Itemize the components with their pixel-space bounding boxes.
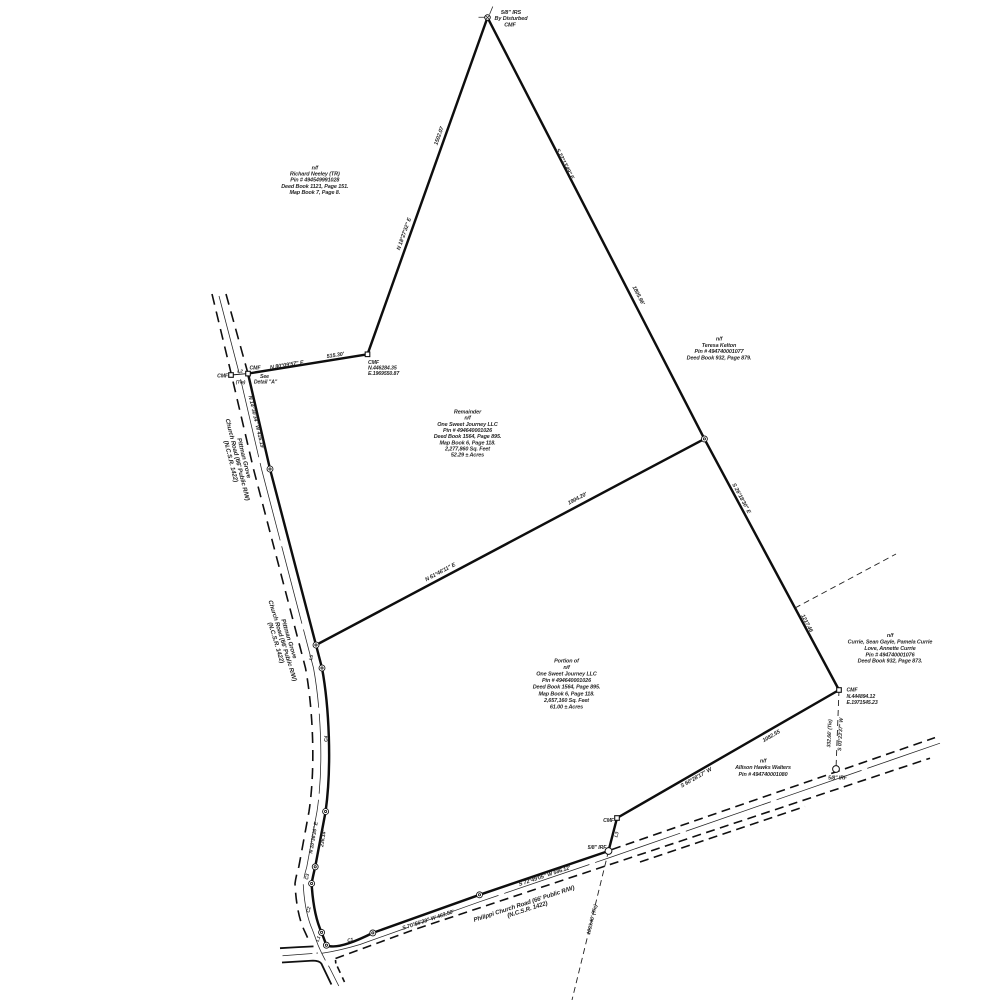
svg-text:CMF: CMF [847, 688, 859, 694]
svg-text:Detail "A": Detail "A" [254, 379, 278, 385]
svg-text:Pin # 494640001026: Pin # 494640001026 [443, 428, 493, 434]
svg-text:Allison Hawks Walters: Allison Hawks Walters [734, 765, 791, 771]
svg-text:CMF: CMF [504, 23, 516, 29]
svg-text:Pin # 494740001077: Pin # 494740001077 [695, 349, 745, 355]
svg-text:Map Book 7, Page 8.: Map Book 7, Page 8. [289, 190, 340, 196]
svg-text:Pin # 494549991028: Pin # 494549991028 [290, 178, 340, 184]
svg-text:L2: L2 [237, 368, 243, 374]
svg-text:E.1969550.87: E.1969550.87 [368, 371, 400, 377]
svg-text:2,657,160 Sq. Feet: 2,657,160 Sq. Feet [543, 698, 589, 704]
svg-text:Teresa Kelton: Teresa Kelton [702, 343, 737, 349]
svg-text:5/8" IRF: 5/8" IRF [828, 776, 848, 782]
svg-text:Portion of: Portion of [554, 659, 580, 665]
svg-text:One Sweet Journey LLC: One Sweet Journey LLC [536, 672, 597, 678]
svg-text:(Tie): (Tie) [236, 379, 246, 385]
svg-text:CMF: CMF [217, 374, 229, 380]
svg-text:Map Book 6, Page 118.: Map Book 6, Page 118. [439, 440, 496, 446]
svg-text:Love, Annette Currie: Love, Annette Currie [864, 646, 915, 652]
svg-text:Pin # 494740001076: Pin # 494740001076 [866, 652, 916, 658]
svg-text:CMF: CMF [603, 818, 615, 824]
svg-text:One Sweet Journey LLC: One Sweet Journey LLC [437, 422, 498, 428]
svg-text:Deed Book 932, Page 873.: Deed Book 932, Page 873. [858, 659, 923, 665]
svg-text:52.29 ± Acres: 52.29 ± Acres [451, 453, 484, 459]
svg-text:Deed Book 1121, Page 151.: Deed Book 1121, Page 151. [281, 184, 349, 190]
svg-text:2,277,860 Sq. Feet: 2,277,860 Sq. Feet [444, 446, 490, 452]
svg-text:CMF: CMF [250, 365, 262, 371]
svg-text:Deed Book 1564, Page 895.: Deed Book 1564, Page 895. [533, 685, 601, 691]
svg-text:Deed Book 932, Page 879.: Deed Book 932, Page 879. [687, 356, 752, 362]
svg-text:C4: C4 [323, 735, 330, 742]
svg-text:5/8" IRF: 5/8" IRF [588, 845, 608, 851]
svg-text:Pin # 494640001026: Pin # 494640001026 [542, 678, 592, 684]
svg-text:E.1971545.23: E.1971545.23 [847, 700, 878, 706]
svg-text:By Disturbed: By Disturbed [494, 16, 528, 22]
svg-text:Richard Neeley (TR): Richard Neeley (TR) [290, 172, 340, 178]
svg-text:Map Book 6, Page 118.: Map Book 6, Page 118. [538, 691, 595, 697]
svg-text:Deed Book 1564, Page 895.: Deed Book 1564, Page 895. [434, 434, 502, 440]
svg-text:Currie, Sean Gayle, Pamela Cur: Currie, Sean Gayle, Pamela Currie [848, 640, 933, 646]
svg-text:Remainder: Remainder [454, 410, 482, 416]
svg-text:Pin # 494740001080: Pin # 494740001080 [739, 772, 788, 778]
svg-text:61.00 ± Acres: 61.00 ± Acres [550, 704, 583, 710]
svg-text:N.444894.12: N.444894.12 [847, 694, 876, 700]
